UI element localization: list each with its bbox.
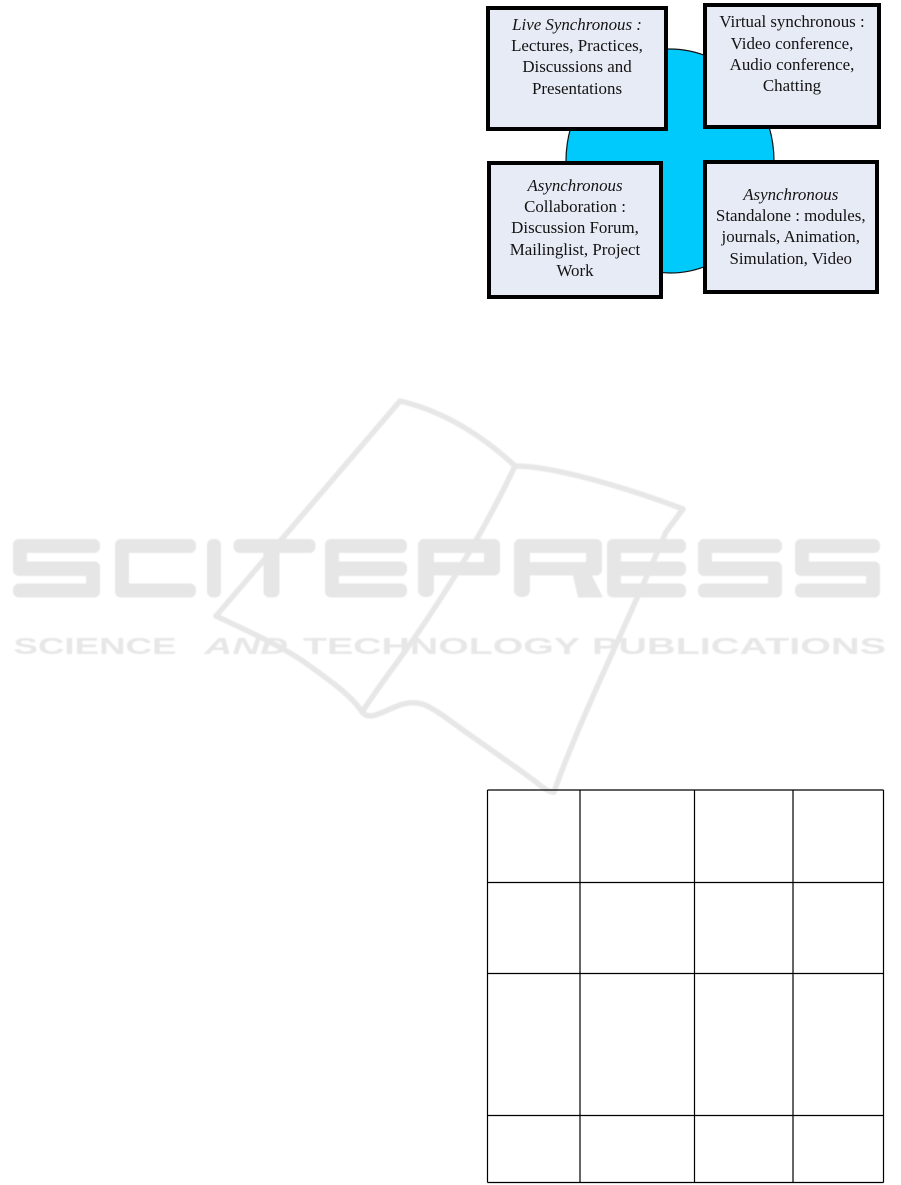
svg-text:SCIENCE: SCIENCE: [14, 633, 177, 659]
svg-text:AND: AND: [203, 633, 288, 659]
svg-text:TECHNOLOGY: TECHNOLOGY: [303, 633, 580, 659]
svg-text:PUBLICATIONS: PUBLICATIONS: [592, 633, 886, 659]
